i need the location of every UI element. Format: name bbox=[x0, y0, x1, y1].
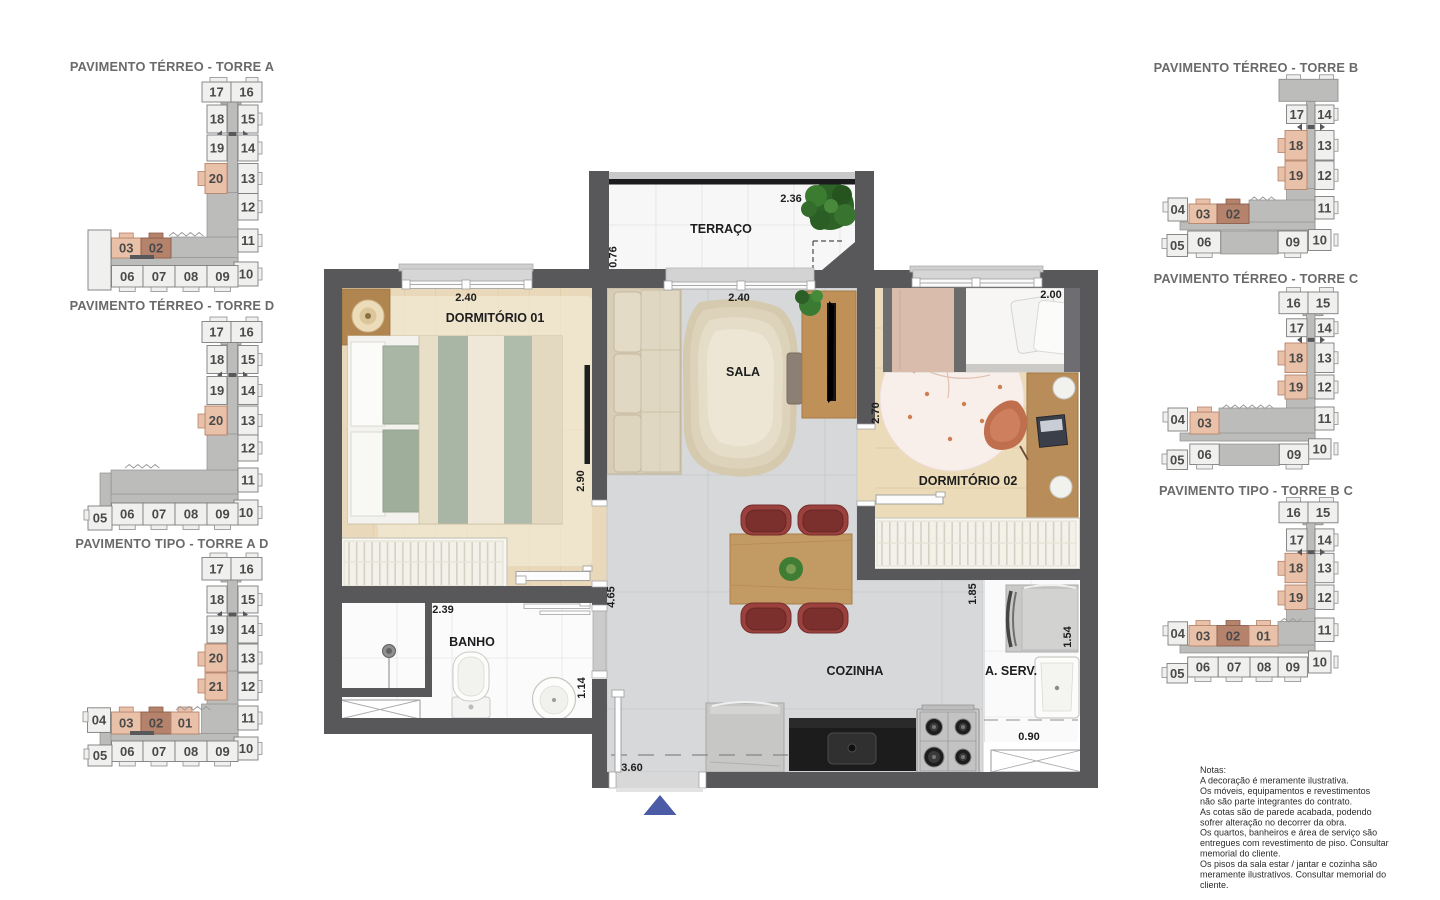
svg-text:06: 06 bbox=[120, 269, 134, 284]
svg-text:10: 10 bbox=[1313, 233, 1327, 248]
svg-text:04: 04 bbox=[1171, 412, 1186, 427]
svg-text:Notas:: Notas: bbox=[1200, 765, 1226, 775]
svg-text:17: 17 bbox=[209, 85, 223, 100]
svg-text:06: 06 bbox=[1196, 660, 1210, 675]
svg-text:03: 03 bbox=[119, 716, 133, 731]
svg-text:17: 17 bbox=[1290, 320, 1304, 335]
svg-text:16: 16 bbox=[239, 85, 253, 100]
svg-text:02: 02 bbox=[149, 716, 163, 731]
svg-text:02: 02 bbox=[1226, 628, 1240, 643]
svg-text:03: 03 bbox=[1196, 628, 1210, 643]
svg-text:2.40: 2.40 bbox=[728, 292, 749, 304]
svg-text:01: 01 bbox=[1256, 628, 1270, 643]
svg-text:PAVIMENTO TÉRREO - TORRE D: PAVIMENTO TÉRREO - TORRE D bbox=[70, 298, 275, 313]
svg-text:14: 14 bbox=[241, 141, 256, 156]
svg-text:12: 12 bbox=[241, 441, 255, 456]
svg-text:19: 19 bbox=[210, 622, 224, 637]
svg-text:19: 19 bbox=[210, 383, 224, 398]
svg-text:10: 10 bbox=[239, 505, 253, 520]
svg-text:16: 16 bbox=[239, 325, 253, 340]
svg-text:02: 02 bbox=[149, 241, 163, 256]
svg-text:13: 13 bbox=[1317, 561, 1331, 576]
svg-text:2.90: 2.90 bbox=[575, 470, 587, 491]
svg-text:2.00: 2.00 bbox=[1040, 289, 1061, 301]
svg-text:18: 18 bbox=[1289, 350, 1303, 365]
svg-text:PAVIMENTO TÉRREO - TORRE A: PAVIMENTO TÉRREO - TORRE A bbox=[70, 59, 274, 74]
svg-text:15: 15 bbox=[241, 352, 255, 367]
svg-text:20: 20 bbox=[209, 171, 223, 186]
svg-text:TERRAÇO: TERRAÇO bbox=[690, 222, 752, 236]
svg-text:20: 20 bbox=[209, 651, 223, 666]
svg-text:4.65: 4.65 bbox=[606, 586, 618, 607]
svg-text:sofrer alteração no decorrer d: sofrer alteração no decorrer da obra. bbox=[1200, 817, 1347, 827]
svg-text:04: 04 bbox=[1171, 626, 1186, 641]
svg-text:16: 16 bbox=[1286, 505, 1300, 520]
svg-text:Os quartos, banheiros e área d: Os quartos, banheiros e área de serviço … bbox=[1200, 828, 1377, 838]
svg-text:12: 12 bbox=[241, 679, 255, 694]
svg-text:09: 09 bbox=[1286, 235, 1300, 250]
svg-text:2.40: 2.40 bbox=[455, 292, 476, 304]
svg-text:3.60: 3.60 bbox=[621, 762, 642, 774]
svg-text:entregues com revestimento de: entregues com revestimento de piso. Cons… bbox=[1200, 838, 1389, 848]
svg-text:02: 02 bbox=[1226, 206, 1240, 221]
svg-text:13: 13 bbox=[241, 651, 255, 666]
svg-text:11: 11 bbox=[241, 711, 255, 726]
svg-text:05: 05 bbox=[1170, 238, 1184, 253]
svg-text:04: 04 bbox=[1171, 202, 1186, 217]
svg-text:15: 15 bbox=[241, 112, 255, 127]
svg-text:13: 13 bbox=[241, 171, 255, 186]
svg-text:03: 03 bbox=[1197, 416, 1211, 431]
svg-text:11: 11 bbox=[1318, 411, 1332, 426]
svg-text:21: 21 bbox=[209, 679, 223, 694]
svg-text:15: 15 bbox=[1316, 505, 1330, 520]
svg-text:PAVIMENTO TIPO - TORRE A D: PAVIMENTO TIPO - TORRE A D bbox=[75, 536, 268, 551]
svg-text:16: 16 bbox=[1286, 295, 1300, 310]
svg-text:18: 18 bbox=[210, 592, 224, 607]
svg-text:18: 18 bbox=[210, 352, 224, 367]
svg-text:08: 08 bbox=[184, 744, 198, 759]
svg-text:06: 06 bbox=[1197, 447, 1211, 462]
svg-text:14: 14 bbox=[1317, 533, 1332, 548]
svg-text:14: 14 bbox=[1317, 107, 1332, 122]
svg-text:07: 07 bbox=[152, 269, 166, 284]
svg-text:10: 10 bbox=[1313, 442, 1327, 457]
svg-text:19: 19 bbox=[1289, 590, 1303, 605]
svg-text:A. SERV.: A. SERV. bbox=[985, 664, 1037, 678]
svg-text:12: 12 bbox=[1317, 380, 1331, 395]
svg-text:não são parte integrantes do c: não são parte integrantes do contrato. bbox=[1200, 796, 1352, 806]
svg-text:17: 17 bbox=[209, 325, 223, 340]
svg-text:03: 03 bbox=[119, 241, 133, 256]
svg-text:15: 15 bbox=[241, 592, 255, 607]
svg-text:09: 09 bbox=[215, 269, 229, 284]
svg-text:01: 01 bbox=[178, 716, 192, 731]
svg-text:2.36: 2.36 bbox=[780, 193, 801, 205]
svg-text:09: 09 bbox=[1286, 660, 1300, 675]
svg-text:DORMITÓRIO 01: DORMITÓRIO 01 bbox=[446, 310, 545, 325]
svg-text:05: 05 bbox=[1170, 666, 1184, 681]
svg-text:BANHO: BANHO bbox=[449, 635, 495, 649]
svg-text:SALA: SALA bbox=[726, 365, 760, 379]
svg-text:14: 14 bbox=[241, 622, 256, 637]
svg-text:07: 07 bbox=[152, 507, 166, 522]
svg-text:14: 14 bbox=[1317, 320, 1332, 335]
svg-text:06: 06 bbox=[120, 744, 134, 759]
svg-text:19: 19 bbox=[1289, 380, 1303, 395]
svg-text:07: 07 bbox=[152, 744, 166, 759]
svg-text:12: 12 bbox=[1317, 590, 1331, 605]
svg-text:05: 05 bbox=[93, 748, 107, 763]
svg-text:09: 09 bbox=[215, 507, 229, 522]
svg-text:1.54: 1.54 bbox=[1062, 625, 1074, 647]
svg-text:13: 13 bbox=[1317, 350, 1331, 365]
svg-text:1.85: 1.85 bbox=[967, 583, 979, 604]
svg-text:20: 20 bbox=[209, 413, 223, 428]
svg-text:05: 05 bbox=[93, 511, 107, 526]
svg-text:06: 06 bbox=[120, 507, 134, 522]
svg-text:0.76: 0.76 bbox=[608, 246, 620, 267]
svg-text:16: 16 bbox=[239, 561, 253, 576]
svg-text:10: 10 bbox=[1313, 655, 1327, 670]
svg-text:18: 18 bbox=[1289, 138, 1303, 153]
svg-text:14: 14 bbox=[241, 383, 256, 398]
svg-text:09: 09 bbox=[1287, 447, 1301, 462]
svg-text:0.90: 0.90 bbox=[1018, 731, 1039, 743]
svg-text:A decoração é meramente ilustr: A decoração é meramente ilustrativa. bbox=[1200, 775, 1349, 785]
svg-text:PAVIMENTO TIPO - TORRE B C: PAVIMENTO TIPO - TORRE B C bbox=[1159, 483, 1353, 498]
svg-text:11: 11 bbox=[1318, 622, 1332, 637]
svg-text:PAVIMENTO TÉRREO - TORRE C: PAVIMENTO TÉRREO - TORRE C bbox=[1154, 271, 1359, 286]
svg-text:15: 15 bbox=[1316, 295, 1330, 310]
svg-text:cliente.: cliente. bbox=[1200, 880, 1229, 890]
svg-text:1.14: 1.14 bbox=[576, 676, 588, 698]
svg-text:17: 17 bbox=[1290, 107, 1304, 122]
svg-text:13: 13 bbox=[1317, 138, 1331, 153]
svg-text:19: 19 bbox=[210, 141, 224, 156]
svg-text:08: 08 bbox=[184, 269, 198, 284]
svg-text:18: 18 bbox=[1289, 561, 1303, 576]
svg-text:07: 07 bbox=[1227, 660, 1241, 675]
svg-text:18: 18 bbox=[210, 112, 224, 127]
svg-text:11: 11 bbox=[1318, 200, 1332, 215]
svg-text:10: 10 bbox=[239, 741, 253, 756]
svg-text:meramente ilustrativos. Consul: meramente ilustrativos. Consultar memori… bbox=[1200, 870, 1386, 880]
svg-text:11: 11 bbox=[241, 233, 255, 248]
svg-text:2.39: 2.39 bbox=[432, 604, 453, 616]
svg-text:12: 12 bbox=[1317, 168, 1331, 183]
svg-text:17: 17 bbox=[1290, 533, 1304, 548]
svg-text:Os pisos da sala estar / janta: Os pisos da sala estar / jantar e cozinh… bbox=[1200, 859, 1377, 869]
svg-text:PAVIMENTO TÉRREO - TORRE B: PAVIMENTO TÉRREO - TORRE B bbox=[1154, 60, 1359, 75]
svg-text:13: 13 bbox=[241, 413, 255, 428]
svg-text:03: 03 bbox=[1196, 206, 1210, 221]
svg-text:COZINHA: COZINHA bbox=[827, 664, 884, 678]
svg-text:17: 17 bbox=[209, 561, 223, 576]
svg-text:11: 11 bbox=[241, 473, 255, 488]
svg-text:As cotas são de parede acabada: As cotas são de parede acabada, podendo bbox=[1200, 807, 1372, 817]
svg-text:2.70: 2.70 bbox=[870, 402, 882, 423]
svg-text:09: 09 bbox=[215, 744, 229, 759]
svg-text:Os móveis, equipamentos e reve: Os móveis, equipamentos e revestimentos bbox=[1200, 786, 1371, 796]
svg-text:05: 05 bbox=[1170, 452, 1184, 467]
svg-text:08: 08 bbox=[1257, 660, 1271, 675]
svg-text:memorial do cliente.: memorial do cliente. bbox=[1200, 849, 1281, 859]
svg-text:10: 10 bbox=[239, 267, 253, 282]
svg-text:DORMITÓRIO 02: DORMITÓRIO 02 bbox=[919, 473, 1018, 488]
svg-text:08: 08 bbox=[184, 507, 198, 522]
svg-text:06: 06 bbox=[1197, 235, 1211, 250]
svg-text:04: 04 bbox=[92, 713, 107, 728]
svg-text:12: 12 bbox=[241, 199, 255, 214]
svg-text:19: 19 bbox=[1289, 168, 1303, 183]
